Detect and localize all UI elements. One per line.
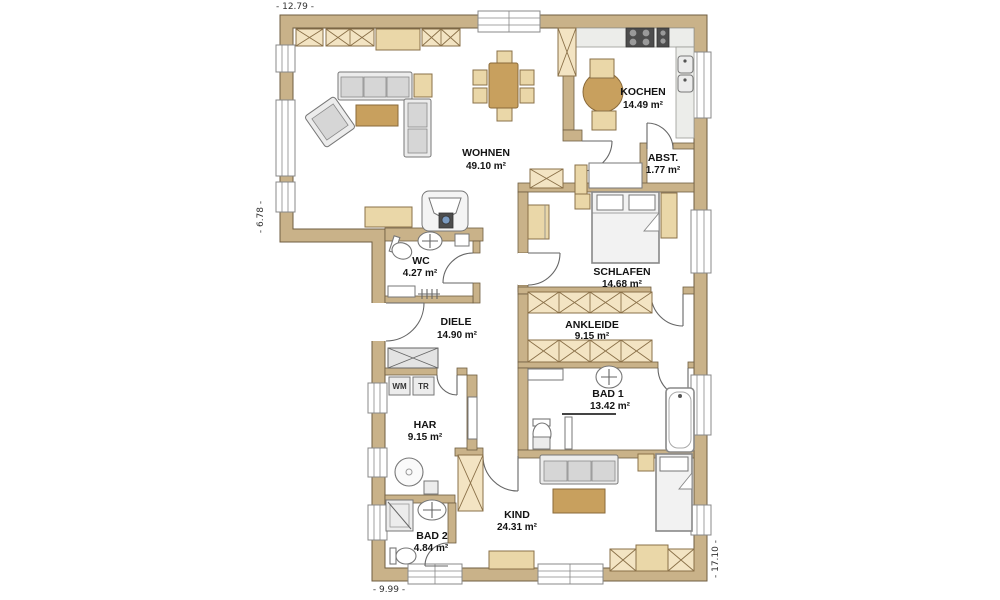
room-label-diele: DIELE bbox=[441, 316, 472, 328]
floor-plan-drawing: WM TR bbox=[0, 0, 1000, 600]
nightstand bbox=[638, 454, 654, 471]
room-area-bad1: 13.42 m² bbox=[590, 401, 631, 412]
room-area-ankleide: 9.15 m² bbox=[575, 331, 610, 342]
bed bbox=[656, 454, 692, 531]
washbasin bbox=[596, 366, 622, 388]
kochen-furniture bbox=[558, 28, 694, 138]
sideboard bbox=[365, 207, 412, 227]
shaft bbox=[558, 28, 576, 76]
room-label-bad2: BAD 2 bbox=[416, 530, 448, 542]
ankleide-door bbox=[651, 294, 683, 326]
fireplace bbox=[422, 191, 468, 231]
room-area-wohnen: 49.10 m² bbox=[466, 161, 507, 172]
window bbox=[691, 505, 711, 535]
room-label-ankleide: ANKLEIDE bbox=[565, 319, 619, 331]
room-label-har: HAR bbox=[414, 419, 437, 431]
kitchen-chair bbox=[592, 111, 616, 130]
cabinet bbox=[455, 234, 469, 246]
wardrobe-left bbox=[528, 205, 549, 239]
dimension-right: - 17.10 - bbox=[711, 540, 721, 578]
schlafen-door bbox=[518, 253, 560, 285]
panel bbox=[468, 397, 477, 439]
window bbox=[368, 448, 387, 477]
dryer-label: TR bbox=[418, 382, 429, 391]
har-door bbox=[437, 375, 457, 395]
chaise-longue bbox=[404, 99, 431, 157]
dryer: TR bbox=[413, 377, 434, 395]
side-table bbox=[414, 74, 432, 97]
abst-door bbox=[647, 123, 673, 149]
window bbox=[276, 100, 295, 176]
kitchen-chair bbox=[590, 59, 614, 78]
hall-wardrobe bbox=[388, 348, 438, 368]
washing-machine-label: WM bbox=[392, 382, 407, 391]
oven bbox=[657, 28, 669, 47]
nightstand bbox=[575, 194, 590, 209]
room-label-abst: ABST. bbox=[648, 152, 678, 164]
window bbox=[408, 564, 462, 584]
washbasin bbox=[418, 500, 446, 520]
window bbox=[368, 505, 387, 540]
bench bbox=[589, 163, 642, 188]
room-area-abst: 1.77 m² bbox=[646, 165, 681, 176]
washbasin bbox=[418, 232, 442, 250]
dimension-top: - 12.79 - bbox=[276, 2, 314, 12]
wardrobe bbox=[610, 545, 694, 571]
dining-set bbox=[473, 51, 534, 121]
boiler bbox=[395, 458, 438, 494]
washing-machine: WM bbox=[389, 377, 410, 395]
room-label-kind: KIND bbox=[504, 509, 530, 521]
wall-cabinets bbox=[296, 29, 460, 50]
wardrobe-row-top bbox=[528, 292, 652, 313]
bathtub bbox=[666, 388, 694, 452]
schlafen-furniture bbox=[528, 192, 677, 263]
room-label-bad1: BAD 1 bbox=[592, 388, 624, 400]
window bbox=[478, 11, 540, 32]
room-area-har: 9.15 m² bbox=[408, 432, 443, 443]
shaft-column bbox=[458, 455, 483, 511]
hall-cabinet bbox=[530, 169, 563, 188]
radiator bbox=[533, 437, 550, 449]
window bbox=[538, 564, 603, 584]
wc-door bbox=[443, 253, 473, 283]
room-label-wohnen: WOHNEN bbox=[462, 147, 510, 159]
cabinet bbox=[388, 286, 415, 297]
sofa bbox=[338, 72, 412, 100]
toilet bbox=[390, 548, 416, 564]
entrance-door bbox=[371, 303, 424, 341]
window bbox=[368, 383, 387, 413]
dimension-bottom: - 9.99 - bbox=[373, 585, 405, 595]
room-area-kind: 24.31 m² bbox=[497, 522, 538, 533]
room-area-bad2: 4.84 m² bbox=[414, 543, 449, 554]
shelf bbox=[528, 369, 563, 380]
room-area-kochen: 14.49 m² bbox=[623, 100, 664, 111]
window bbox=[276, 182, 295, 212]
table bbox=[553, 489, 605, 513]
wardrobe-row-bottom bbox=[528, 340, 652, 362]
partition bbox=[565, 417, 572, 449]
room-area-wc: 4.27 m² bbox=[403, 268, 438, 279]
coffee-table bbox=[356, 105, 398, 126]
armchair bbox=[304, 96, 355, 148]
room-area-schlafen: 14.68 m² bbox=[602, 279, 643, 290]
room-area-diele: 14.90 m² bbox=[437, 330, 478, 341]
room-label-wc: WC bbox=[412, 255, 430, 267]
sofa bbox=[540, 455, 618, 484]
kind-door bbox=[483, 456, 518, 491]
floor-plan-page: WM TR bbox=[0, 0, 1000, 600]
room-label-kochen: KOCHEN bbox=[620, 86, 666, 98]
double-bed bbox=[592, 192, 659, 263]
window bbox=[276, 45, 295, 72]
shower bbox=[386, 500, 413, 531]
room-label-schlafen: SCHLAFEN bbox=[593, 266, 650, 278]
wardrobe-right bbox=[661, 193, 677, 238]
dining-table bbox=[489, 63, 518, 108]
window bbox=[691, 210, 711, 273]
stove bbox=[626, 28, 654, 47]
dimension-left: - 6.78 - bbox=[256, 201, 266, 233]
desk bbox=[489, 551, 534, 569]
